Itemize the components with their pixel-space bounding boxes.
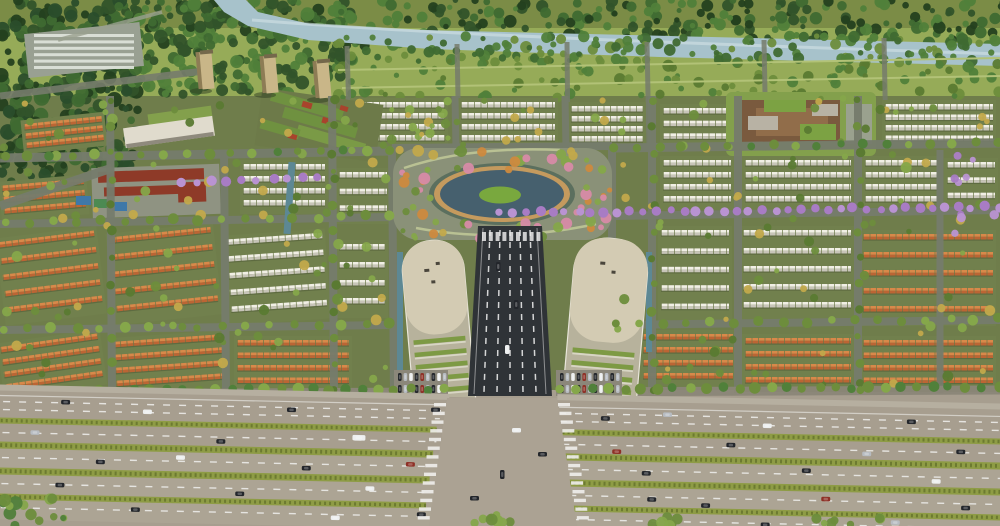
street-h: [392, 146, 612, 148]
crosswalk: [482, 232, 540, 241]
street-v: [110, 96, 112, 393]
housing-block: [740, 226, 854, 322]
campus-green-roof: [764, 100, 806, 112]
street-v: [224, 152, 226, 393]
housing-block: [660, 156, 734, 210]
street-v: [565, 96, 566, 148]
roof-vent: [431, 280, 435, 283]
housing-block: [223, 229, 331, 326]
street-h: [612, 143, 1000, 148]
roof-vent: [611, 271, 615, 274]
campus-roof-slab: [748, 116, 778, 130]
housing-block: [944, 158, 998, 210]
housing-block: [240, 160, 328, 214]
roof-vent: [600, 261, 605, 264]
central-boulevard: [468, 226, 552, 396]
roof-vent: [436, 262, 440, 265]
intersection-pavement: [429, 398, 577, 526]
mall-roof: [568, 235, 651, 345]
parked-cars: [398, 385, 446, 393]
housing-block: [658, 226, 732, 324]
housing-block: [568, 102, 646, 148]
housing-block: [860, 230, 996, 326]
aerial-masterplan-render: Aerial 3D rendering of a master-planned …: [0, 0, 1000, 526]
boulevard-asphalt: [468, 226, 552, 396]
housing-block: [0, 226, 107, 326]
parked-cars: [398, 373, 446, 381]
lake-island: [479, 187, 521, 204]
roof-vent: [424, 269, 429, 272]
mall-roof: [400, 238, 470, 337]
scene-svg: [0, 0, 1000, 526]
housing-block: [860, 336, 996, 392]
housing-block: [105, 223, 222, 326]
sports-court-blue: [76, 196, 91, 205]
housing-block: [742, 156, 854, 210]
parked-cars: [560, 373, 620, 381]
